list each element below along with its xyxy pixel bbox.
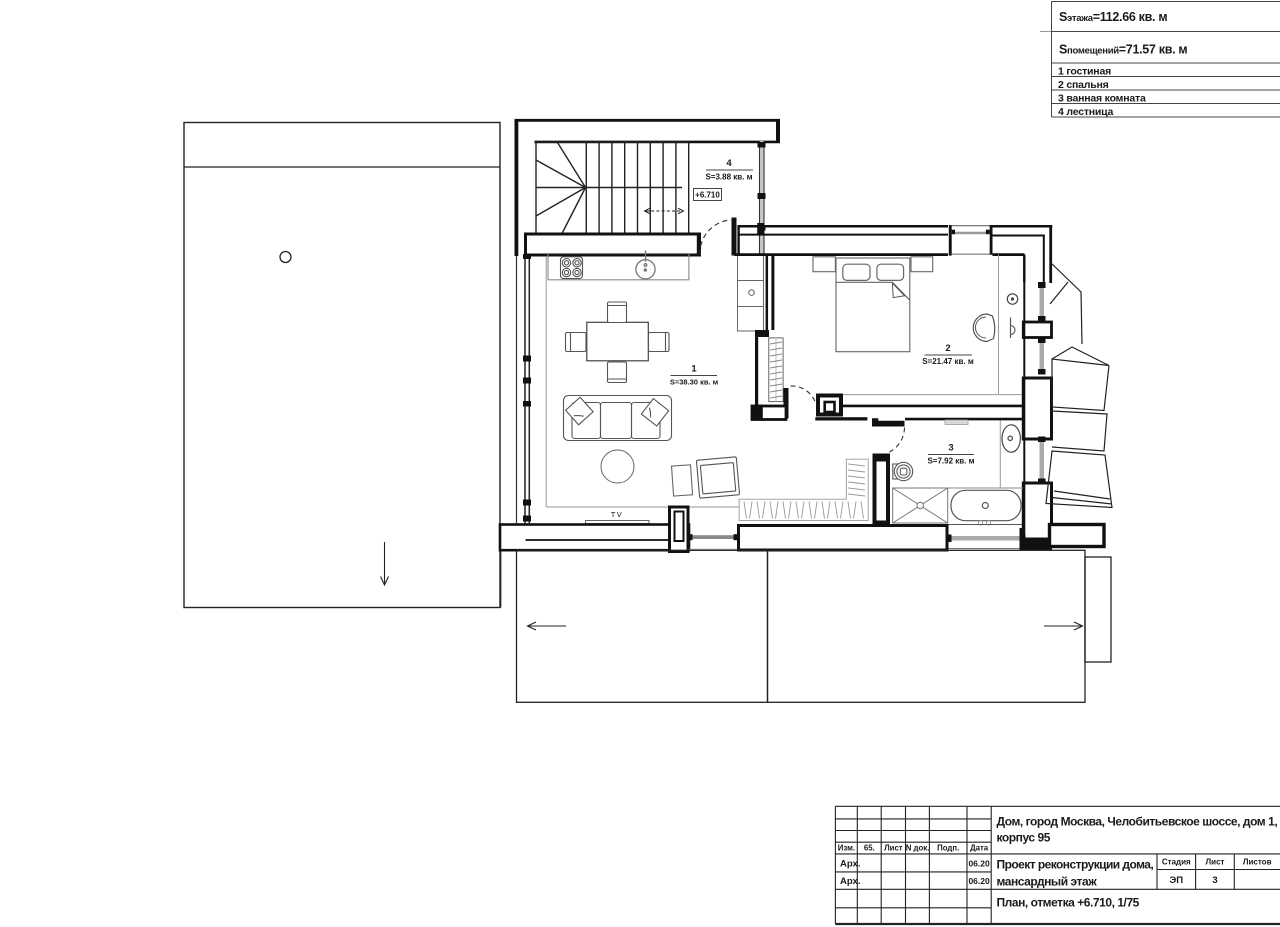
svg-text:N док.: N док. (906, 844, 930, 853)
svg-text:TV: TV (611, 510, 624, 519)
svg-text:3: 3 (1212, 875, 1217, 886)
svg-text:Стадия: Стадия (1162, 858, 1191, 867)
svg-text:Изм.: Изм. (838, 844, 855, 853)
svg-text:3 ванная комната: 3 ванная комната (1058, 93, 1146, 105)
svg-text:S=38.30 кв. м: S=38.30 кв. м (670, 378, 719, 387)
svg-text:+6.710: +6.710 (695, 191, 720, 200)
svg-text:Sэтажа=112.66 кв. м: Sэтажа=112.66 кв. м (1059, 10, 1167, 24)
svg-text:4 лестница: 4 лестница (1058, 106, 1114, 118)
svg-text:S=3.88 кв. м: S=3.88 кв. м (705, 173, 752, 182)
svg-text:65.: 65. (864, 844, 875, 853)
svg-text:S=21.47 кв. м: S=21.47 кв. м (922, 357, 974, 366)
svg-text:1 гостиная: 1 гостиная (1058, 66, 1111, 78)
svg-text:06.20: 06.20 (968, 876, 990, 886)
svg-text:корпус 95: корпус 95 (997, 831, 1051, 845)
svg-text:План, отметка +6.710, 1/75: План, отметка +6.710, 1/75 (997, 896, 1140, 910)
svg-text:Арх.: Арх. (840, 876, 860, 887)
svg-text:06.20: 06.20 (968, 859, 990, 869)
svg-text:ЭП: ЭП (1170, 875, 1184, 886)
svg-text:Лист: Лист (1206, 858, 1225, 867)
svg-text:3: 3 (948, 443, 953, 454)
svg-text:мансардный этаж: мансардный этаж (997, 875, 1098, 889)
svg-text:4: 4 (726, 158, 732, 169)
svg-text:Дата: Дата (970, 844, 989, 853)
svg-text:Sпомещений=71.57 кв. м: Sпомещений=71.57 кв. м (1059, 43, 1187, 57)
svg-text:Арх.: Арх. (840, 859, 860, 870)
svg-text:Дом, город Москва, Челобитьевс: Дом, город Москва, Челобитьевское шоссе,… (997, 815, 1278, 829)
svg-text:Листов: Листов (1243, 858, 1272, 867)
svg-text:Подп.: Подп. (937, 844, 959, 853)
svg-text:2: 2 (945, 343, 950, 354)
svg-text:S=7.92 кв. м: S=7.92 кв. м (927, 457, 974, 466)
svg-text:1: 1 (691, 364, 697, 375)
svg-text:Лист: Лист (884, 844, 903, 853)
svg-text:Проект реконструкции дома,: Проект реконструкции дома, (997, 858, 1154, 872)
svg-text:2 спальня: 2 спальня (1058, 79, 1109, 91)
